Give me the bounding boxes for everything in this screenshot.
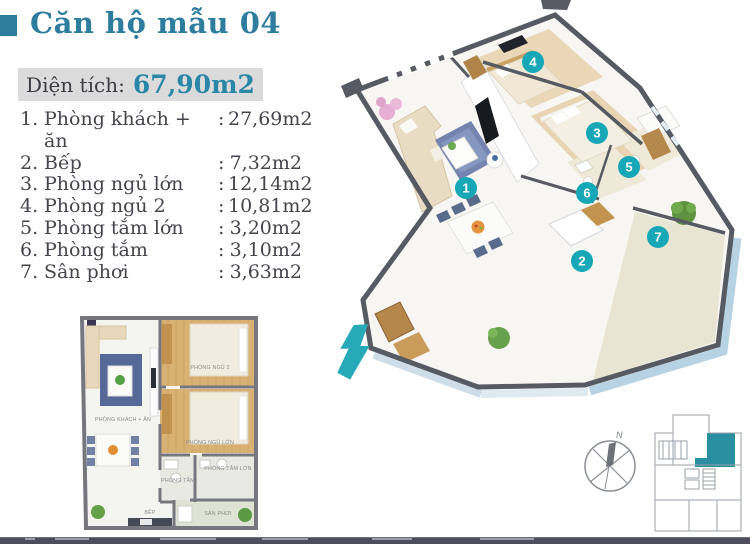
shower-2d	[164, 460, 178, 469]
brochure-page: Căn hộ mẫu 04 Diện tích: 67,90m2 1. Phòn…	[0, 0, 750, 544]
wardrobe-2d	[162, 324, 172, 364]
plan2d-label-bath: PHÒNG TẮM	[161, 476, 195, 484]
table-plant	[448, 142, 456, 150]
sofa-2d	[86, 326, 99, 388]
room-number: 4.	[20, 196, 44, 218]
room-list-row: 3. Phòng ngủ lớn : 12,14m2	[20, 174, 302, 196]
room-area: 3,63m2	[228, 262, 302, 284]
footer-tick	[480, 538, 534, 540]
compass-needle	[606, 442, 616, 467]
fruit	[480, 227, 483, 230]
room-name: Sân phơi	[44, 262, 218, 284]
footer-tick	[372, 538, 412, 540]
footer-tick	[262, 538, 308, 540]
area-label: Diện tích:	[26, 73, 125, 97]
footer-strip	[0, 537, 750, 544]
room-list: 1. Phòng khách + ăn : 27,69m2 2. Bếp : 7…	[20, 109, 302, 283]
room-colon: :	[218, 109, 228, 153]
compass: N	[580, 425, 650, 505]
building-key-plan	[645, 403, 750, 537]
svg-text:7: 7	[654, 230, 661, 245]
fruit	[475, 225, 478, 228]
wall-crop-top	[541, 0, 571, 10]
room-number: 5.	[20, 218, 44, 240]
page-title: Căn hộ mẫu 04	[30, 6, 281, 40]
plan-marker-7: 7	[647, 226, 669, 248]
footer-tick	[55, 538, 89, 540]
room-name: Phòng khách + ăn	[44, 109, 218, 153]
room-name: Phòng tắm	[44, 240, 218, 262]
room-number: 2.	[20, 153, 44, 175]
compass-north-label: N	[616, 430, 623, 440]
pillow-2d	[239, 328, 247, 372]
svg-text:3: 3	[593, 126, 600, 141]
room-list-row: 5. Phòng tắm lớn : 3,20m2	[20, 218, 302, 240]
footer-tick	[160, 538, 216, 540]
plan-marker-6: 6	[576, 182, 598, 204]
floor-plan-2d: PHÒNG KHÁCH + ĂN PHÒNG NGỦ 2 PHÒNG NGỦ L…	[40, 312, 302, 538]
room-area: 10,81m2	[228, 196, 302, 218]
unit-highlight	[695, 433, 735, 467]
plan2d-label-kitchen: BẾP	[144, 509, 155, 516]
room-colon: :	[218, 153, 228, 175]
room-list-row: 4. Phòng ngủ 2 : 10,81m2	[20, 196, 302, 218]
decor	[492, 155, 498, 161]
room-colon: :	[218, 240, 228, 262]
room-area: 27,69m2	[228, 109, 302, 153]
header-accent-square	[0, 15, 17, 36]
room-name: Phòng tắm lớn	[44, 218, 218, 240]
plan-marker-2: 2	[571, 250, 593, 272]
room-colon: :	[218, 196, 228, 218]
plant-2d	[91, 505, 105, 519]
floor-plant	[488, 328, 498, 338]
room-colon: :	[218, 262, 228, 284]
fruit-2d	[108, 445, 118, 455]
pink-tree	[376, 97, 386, 107]
balcony-plant-2d	[238, 508, 252, 522]
fruit-plate	[472, 221, 485, 234]
room-area: 7,32m2	[228, 153, 302, 175]
room-area: 3,10m2	[228, 240, 302, 262]
room-number: 7.	[20, 262, 44, 284]
floor-plan-3d: 1 2 3 4 5 6 7	[335, 0, 750, 400]
plan-marker-4: 4	[522, 51, 544, 73]
room-colon: :	[218, 218, 228, 240]
pillow-2d	[239, 396, 247, 440]
room-area: 12,14m2	[228, 174, 302, 196]
wall-face	[481, 392, 588, 394]
washer-2d	[178, 506, 192, 522]
svg-text:1: 1	[462, 181, 469, 196]
area-value: 67,90m2	[133, 70, 255, 99]
sink-kitchen-2d	[140, 519, 152, 525]
plan2d-label-bath-big: PHÒNG TẮM LỚN	[204, 464, 251, 472]
plan2d-label-living: PHÒNG KHÁCH + ĂN	[95, 416, 151, 423]
plant-2d	[115, 375, 125, 385]
room-list-row: 7. Sân phơi : 3,63m2	[20, 262, 302, 284]
balcony-plant	[671, 202, 683, 214]
plan2d-label-bedroom2: PHÒNG NGỦ 2	[190, 364, 229, 371]
room-list-row: 1. Phòng khách + ăn : 27,69m2	[20, 109, 302, 153]
room-name: Phòng ngủ lớn	[44, 174, 218, 196]
room-number: 3.	[20, 174, 44, 196]
plan-marker-5: 5	[618, 156, 640, 178]
plan-marker-1: 1	[455, 177, 477, 199]
building-outline	[655, 415, 741, 531]
svg-text:2: 2	[578, 254, 585, 269]
room-name: Phòng ngủ 2	[44, 196, 218, 218]
svg-text:6: 6	[583, 186, 590, 201]
room-list-row: 6. Phòng tắm : 3,10m2	[20, 240, 302, 262]
room-area: 3,20m2	[228, 218, 302, 240]
tv-screen-2d	[151, 368, 156, 388]
area-box: Diện tích: 67,90m2	[18, 68, 263, 101]
room-number: 1.	[20, 109, 44, 153]
balcony-plant	[686, 203, 696, 213]
room-list-row: 2. Bếp : 7,32m2	[20, 153, 302, 175]
pink-tree	[390, 98, 402, 110]
wardrobe-2d	[162, 394, 172, 434]
plan-marker-3: 3	[586, 122, 608, 144]
svg-text:4: 4	[529, 55, 537, 70]
plan2d-label-master: PHÒNG NGỦ LỚN	[186, 439, 234, 446]
room-name: Bếp	[44, 153, 218, 175]
svg-text:5: 5	[625, 160, 632, 175]
room-colon: :	[218, 174, 228, 196]
room-number: 6.	[20, 240, 44, 262]
plan2d-label-balcony: SÂN PHƠI	[204, 510, 231, 517]
footer-tick	[25, 538, 35, 540]
